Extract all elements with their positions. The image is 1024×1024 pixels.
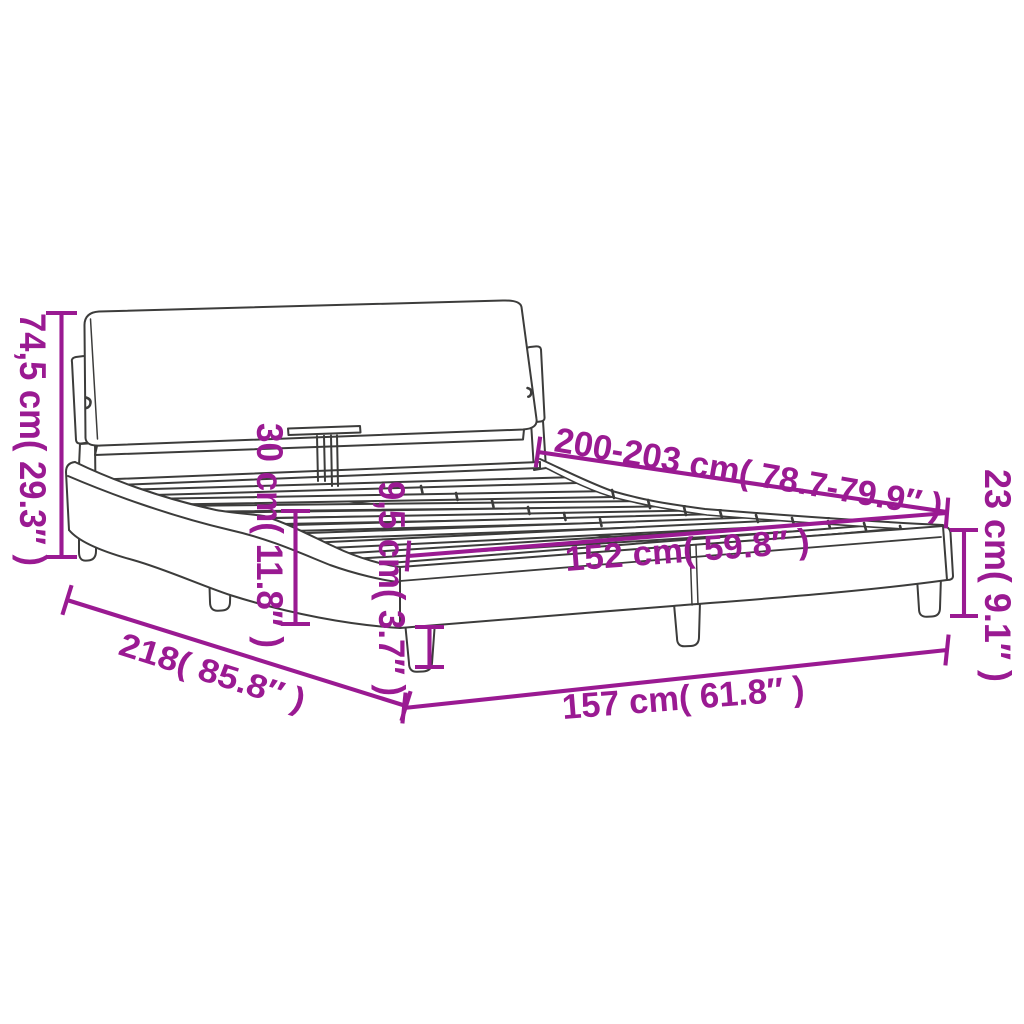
svg-text:30 cm( 11.8″ ): 30 cm( 11.8″ ) — [249, 423, 290, 648]
svg-text:74,5 cm( 29.3″ ): 74,5 cm( 29.3″ ) — [12, 313, 53, 566]
svg-text:157 cm( 61.8″ ): 157 cm( 61.8″ ) — [561, 669, 806, 727]
svg-text:9,5 cm( 3.7″ ): 9,5 cm( 3.7″ ) — [371, 481, 412, 696]
svg-text:23 cm( 9.1″ ): 23 cm( 9.1″ ) — [977, 469, 1018, 682]
